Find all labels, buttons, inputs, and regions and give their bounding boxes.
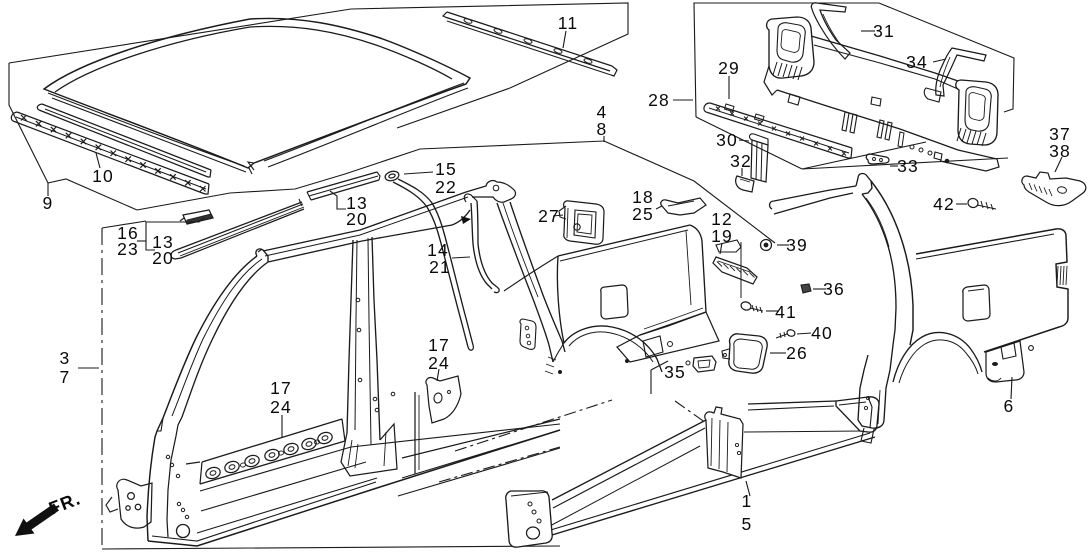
svg-text:38: 38 (1049, 141, 1071, 161)
svg-text:22: 22 (435, 177, 457, 197)
svg-text:5: 5 (742, 514, 753, 534)
svg-text:20: 20 (152, 248, 174, 268)
svg-text:9: 9 (43, 193, 54, 213)
svg-text:21: 21 (429, 257, 451, 277)
svg-text:24: 24 (270, 397, 292, 417)
svg-text:17: 17 (428, 335, 450, 355)
svg-text:36: 36 (823, 279, 845, 299)
svg-text:23: 23 (117, 239, 139, 259)
svg-text:8: 8 (597, 119, 608, 139)
svg-text:7: 7 (60, 367, 71, 387)
svg-text:10: 10 (92, 166, 114, 186)
svg-text:35: 35 (664, 362, 686, 382)
svg-text:31: 31 (873, 21, 895, 41)
svg-text:39: 39 (786, 235, 808, 255)
svg-text:28: 28 (648, 90, 670, 110)
svg-text:15: 15 (435, 159, 457, 179)
svg-text:6: 6 (1004, 396, 1015, 416)
svg-text:3: 3 (60, 348, 71, 368)
svg-text:26: 26 (786, 343, 808, 363)
svg-text:1: 1 (742, 491, 753, 511)
svg-text:34: 34 (906, 52, 928, 72)
svg-text:32: 32 (730, 151, 752, 171)
svg-text:41: 41 (775, 302, 797, 322)
svg-text:27: 27 (538, 206, 560, 226)
svg-text:20: 20 (346, 209, 368, 229)
svg-text:42: 42 (933, 194, 955, 214)
svg-text:30: 30 (716, 130, 738, 150)
svg-text:19: 19 (711, 226, 733, 246)
svg-text:24: 24 (428, 353, 450, 373)
svg-text:11: 11 (558, 13, 579, 33)
svg-text:29: 29 (718, 58, 740, 78)
svg-text:33: 33 (897, 156, 919, 176)
svg-text:17: 17 (270, 378, 292, 398)
svg-text:40: 40 (811, 323, 833, 343)
svg-text:25: 25 (632, 204, 654, 224)
